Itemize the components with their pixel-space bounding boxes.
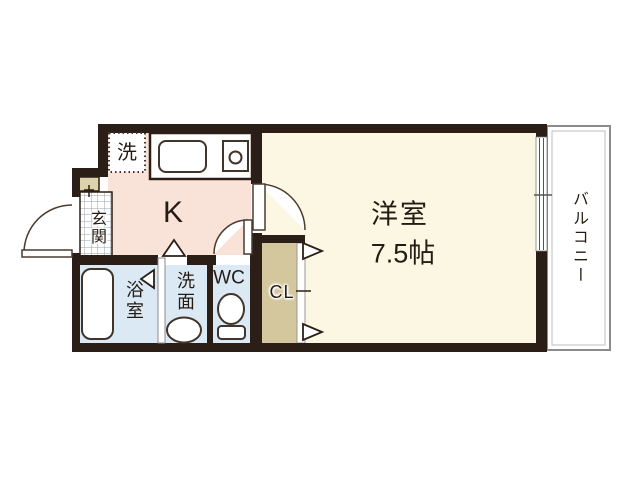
bathtub-icon bbox=[82, 269, 113, 339]
toilet-icon bbox=[218, 294, 245, 339]
balcony-label: バルコニー bbox=[570, 191, 586, 286]
entrance-door bbox=[22, 205, 72, 257]
kitchen-label: K bbox=[163, 198, 183, 228]
washroom-label: 洗面 bbox=[176, 271, 194, 313]
western-room-label: 洋室 bbox=[371, 202, 429, 229]
wc-label: WC bbox=[213, 269, 245, 288]
entrance-label: 玄関 bbox=[88, 210, 104, 246]
washbasin-icon bbox=[167, 318, 201, 343]
closet-label: CL bbox=[269, 283, 294, 301]
western-room-size: 7.5帖 bbox=[371, 241, 436, 268]
laundry-label: 洗 bbox=[117, 143, 137, 163]
floorplan-canvas: K 洋室 7.5帖 バルコニー 玄関 浴室 洗面 WC CL 洗 bbox=[0, 0, 640, 480]
stove-burner-icon bbox=[230, 152, 242, 164]
kitchen-counter bbox=[150, 133, 252, 179]
bath-label: 浴室 bbox=[125, 280, 143, 322]
bath-door-strip bbox=[158, 258, 165, 343]
kitchen-sink-icon bbox=[159, 141, 206, 172]
